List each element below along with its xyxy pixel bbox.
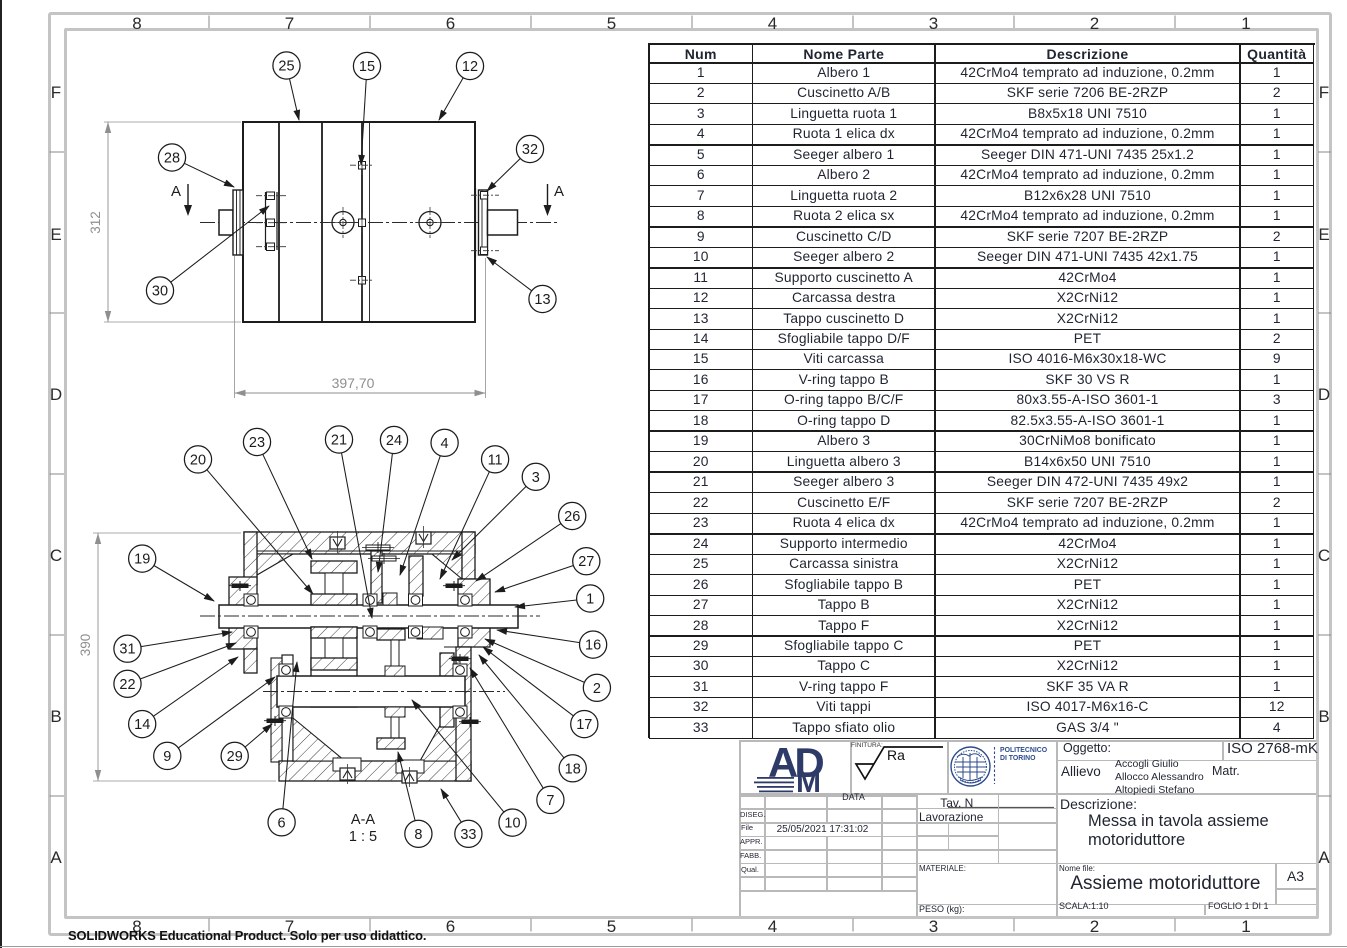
svg-text:10: 10 — [504, 816, 520, 832]
svg-text:7: 7 — [546, 793, 554, 809]
svg-text:A: A — [554, 183, 564, 200]
svg-text:29: 29 — [227, 749, 243, 765]
svg-text:19: 19 — [134, 552, 150, 568]
svg-text:11: 11 — [488, 452, 503, 468]
svg-text:14: 14 — [134, 717, 150, 733]
svg-text:3: 3 — [532, 470, 540, 486]
svg-text:390: 390 — [78, 634, 93, 657]
svg-text:16: 16 — [585, 638, 601, 654]
svg-text:32: 32 — [522, 142, 538, 158]
svg-text:1 : 5: 1 : 5 — [349, 829, 377, 845]
svg-text:27: 27 — [578, 554, 594, 570]
svg-text:31: 31 — [119, 642, 135, 658]
svg-text:28: 28 — [164, 151, 180, 167]
svg-text:312: 312 — [88, 211, 103, 234]
svg-text:9: 9 — [163, 749, 171, 765]
svg-text:Ra: Ra — [887, 747, 905, 763]
svg-text:12: 12 — [462, 59, 478, 75]
svg-text:15: 15 — [359, 59, 375, 75]
svg-text:A-A: A-A — [351, 812, 376, 828]
svg-text:24: 24 — [386, 433, 402, 449]
svg-text:4: 4 — [441, 436, 449, 452]
svg-text:18: 18 — [565, 761, 581, 777]
svg-text:17: 17 — [576, 717, 592, 733]
svg-text:13: 13 — [534, 292, 550, 308]
svg-text:2: 2 — [593, 681, 601, 697]
svg-text:26: 26 — [564, 509, 580, 525]
svg-text:20: 20 — [190, 452, 206, 468]
svg-text:8: 8 — [414, 827, 422, 843]
svg-text:POLITECNICO: POLITECNICO — [1000, 747, 1048, 754]
svg-text:DI TORINO: DI TORINO — [1000, 755, 1036, 762]
svg-text:25: 25 — [278, 59, 294, 75]
svg-text:30: 30 — [152, 284, 168, 300]
svg-text:1: 1 — [586, 592, 594, 608]
svg-text:A: A — [171, 183, 181, 200]
svg-text:33: 33 — [460, 827, 476, 843]
svg-text:22: 22 — [119, 677, 135, 693]
svg-text:23: 23 — [249, 435, 265, 451]
svg-text:6: 6 — [278, 815, 286, 831]
svg-text:21: 21 — [331, 433, 347, 449]
svg-text:397,70: 397,70 — [332, 375, 375, 391]
